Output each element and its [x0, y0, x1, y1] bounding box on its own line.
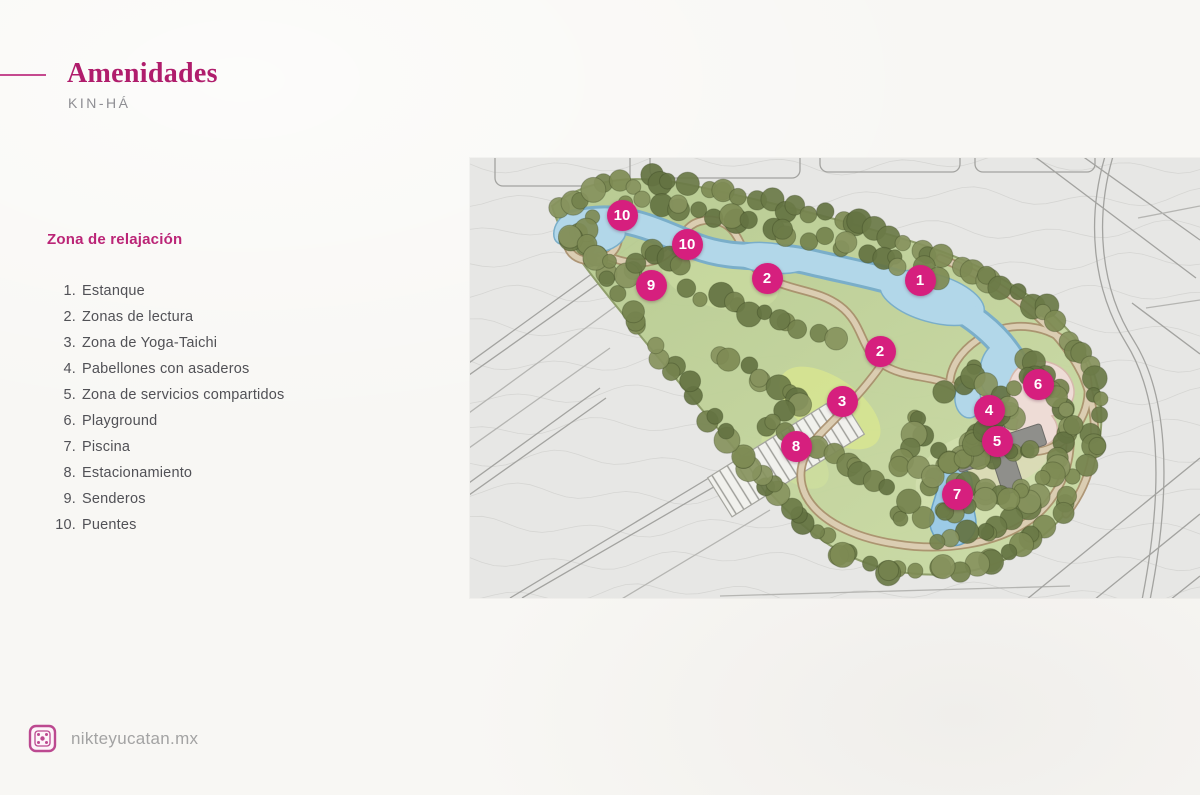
amenity-item: 5.Zona de servicios compartidos: [36, 387, 436, 413]
amenity-label: Piscina: [82, 439, 130, 455]
amenity-item: 10.Puentes: [36, 517, 436, 543]
amenity-item: 6.Playground: [36, 413, 436, 439]
map-marker-6: 6: [1023, 369, 1054, 400]
amenity-label: Estacionamiento: [82, 465, 192, 481]
amenity-label: Senderos: [82, 491, 146, 507]
map-marker-10: 10: [672, 229, 703, 260]
map-marker-5: 5: [982, 426, 1013, 457]
amenity-number: 1.: [36, 283, 76, 299]
amenity-item: 4.Pabellones con asaderos: [36, 361, 436, 387]
page-title: Amenidades: [67, 58, 218, 90]
map-marker-3: 3: [827, 386, 858, 417]
site-plan-illustration: [470, 158, 1200, 598]
map-marker-10: 10: [607, 200, 638, 231]
amenity-number: 5.: [36, 387, 76, 403]
amenity-number: 3.: [36, 335, 76, 351]
map-marker-1: 1: [905, 265, 936, 296]
amenity-label: Zona de Yoga-Taichi: [82, 335, 217, 351]
amenity-number: 8.: [36, 465, 76, 481]
section-heading: Zona de relajación: [47, 231, 182, 248]
amenity-number: 10.: [36, 517, 76, 533]
footer: nikteyucatan.mx: [28, 724, 198, 753]
amenity-label: Zona de servicios compartidos: [82, 387, 284, 403]
amenity-label: Puentes: [82, 517, 137, 533]
website-url: nikteyucatan.mx: [71, 729, 198, 749]
map-marker-2: 2: [752, 263, 783, 294]
accent-line: [0, 74, 46, 76]
amenity-label: Estanque: [82, 283, 145, 299]
map-marker-4: 4: [974, 395, 1005, 426]
amenity-number: 4.: [36, 361, 76, 377]
amenity-number: 7.: [36, 439, 76, 455]
amenity-item: 1.Estanque: [36, 283, 436, 309]
amenity-item: 7.Piscina: [36, 439, 436, 465]
amenity-number: 9.: [36, 491, 76, 507]
map-marker-9: 9: [636, 270, 667, 301]
amenity-label: Zonas de lectura: [82, 309, 193, 325]
nikte-logo-icon: [28, 724, 57, 753]
amenity-item: 9.Senderos: [36, 491, 436, 517]
map-marker-8: 8: [781, 431, 812, 462]
amenity-number: 2.: [36, 309, 76, 325]
map-marker-7: 7: [942, 479, 973, 510]
amenity-list: 1.Estanque2.Zonas de lectura3.Zona de Yo…: [36, 283, 436, 543]
slide: Amenidades KIN-HÁ Zona de relajación 1.E…: [0, 0, 1200, 795]
amenity-label: Pabellones con asaderos: [82, 361, 249, 377]
project-subtitle: KIN-HÁ: [68, 95, 130, 111]
map-marker-2: 2: [865, 336, 896, 367]
amenity-label: Playground: [82, 413, 157, 429]
amenity-item: 8.Estacionamiento: [36, 465, 436, 491]
amenity-item: 2.Zonas de lectura: [36, 309, 436, 335]
amenity-number: 6.: [36, 413, 76, 429]
site-plan-map: 10109212364587: [470, 158, 1200, 598]
amenity-item: 3.Zona de Yoga-Taichi: [36, 335, 436, 361]
